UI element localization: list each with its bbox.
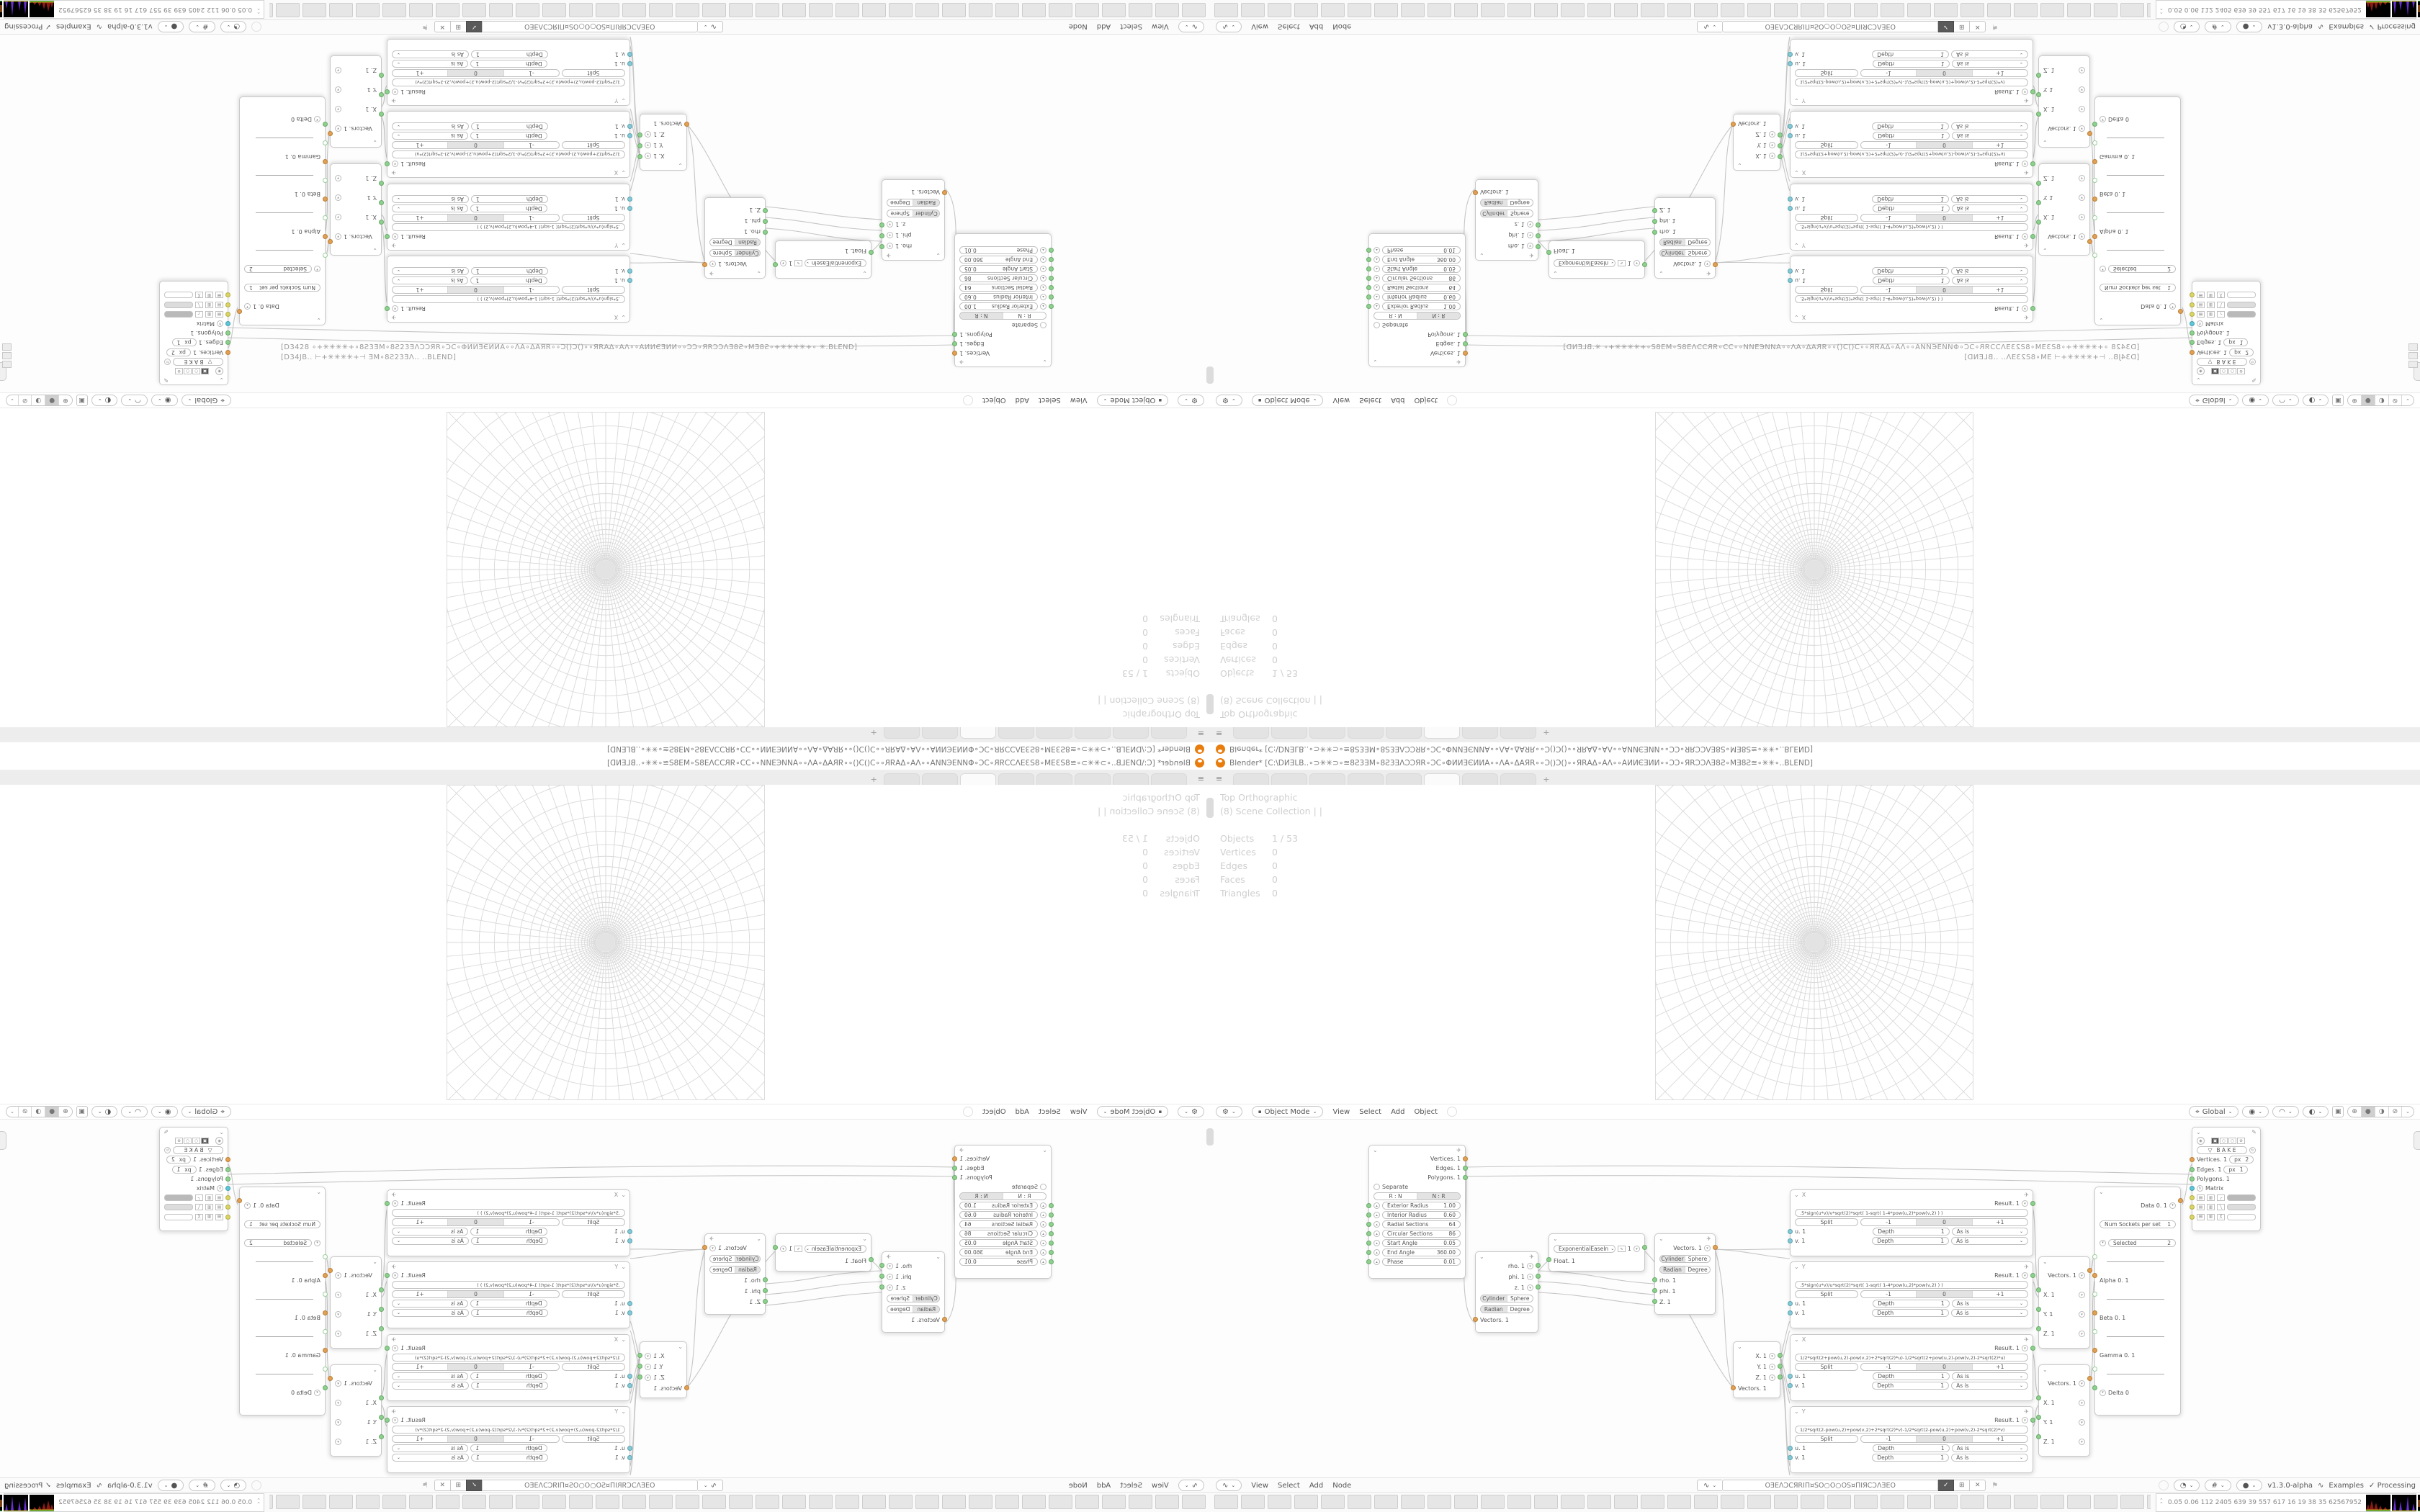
socket-vectors-out[interactable] (2087, 1376, 2092, 1381)
add-workspace-button[interactable]: + (1543, 728, 1549, 737)
socket-x-in[interactable] (379, 112, 384, 117)
taskbar-window-button[interactable] (302, 3, 326, 17)
socket-slot[interactable] (323, 253, 328, 258)
socket-slot[interactable] (323, 1329, 328, 1334)
orientation-selector[interactable]: ⌖Global⌄ (2189, 1106, 2238, 1117)
eye-icon[interactable]: ◉ (215, 367, 223, 375)
taskbar-window-button[interactable] (1987, 1495, 2011, 1509)
menu-select[interactable]: Select (1359, 1108, 1381, 1116)
socket-color-in[interactable] (225, 312, 230, 317)
mode-selector[interactable]: ▪Object Mode⌄ (1252, 395, 1324, 406)
taskbar-window-button[interactable] (409, 1495, 433, 1509)
socket-x-in[interactable] (2036, 220, 2041, 225)
socket-vectors-out[interactable] (2087, 131, 2092, 136)
socket-result-out[interactable] (385, 1273, 390, 1278)
taskbar-window-button[interactable] (889, 3, 913, 17)
node-editor-toolbar-handle[interactable] (1206, 1128, 1210, 1146)
socket-y-in[interactable] (379, 1307, 384, 1312)
search-circle-icon[interactable] (963, 1107, 973, 1117)
workspace-tab[interactable] (884, 773, 920, 785)
sidebar-tab[interactable] (0, 1131, 6, 1150)
taskbar-window-button[interactable] (1129, 1495, 1152, 1509)
node-formula-3[interactable]: ⌄X✈ Result. 1▾ 1/2*sqrt(2+pow(u,2)-pow(v… (387, 1334, 630, 1401)
proportional-edit-button[interactable]: ◠⌄ (2272, 395, 2299, 406)
ring-mode-toggle[interactable]: R : NN : R (959, 1192, 1047, 1200)
workspace-tab-active[interactable] (1424, 773, 1460, 785)
formula-field[interactable]: 1/2*sqrt(2-pow(u,2)+pow(v,2)+2*sqrt(2)*v… (392, 1426, 625, 1434)
socket-v-in[interactable] (1788, 1455, 1793, 1460)
taskbar-window-button[interactable] (1348, 1495, 1371, 1509)
menu-view[interactable]: View (1251, 23, 1268, 31)
socket-edges-in[interactable] (2190, 340, 2195, 345)
angle-toggle[interactable]: RadianDegree (887, 1305, 940, 1313)
socket-vectors-in[interactable] (942, 190, 947, 195)
socket-y-in[interactable] (379, 200, 384, 205)
taskbar-window-button[interactable] (2040, 1495, 2064, 1509)
socket-param-in[interactable] (1366, 1222, 1371, 1227)
angle-toggle[interactable]: RadianDegree (1480, 1305, 1533, 1313)
socket-color-in[interactable] (225, 1215, 230, 1220)
search-circle-icon[interactable] (251, 22, 261, 32)
socket-data-out[interactable] (237, 1198, 242, 1203)
grid-snap-button[interactable]: #⌄ (2205, 1480, 2231, 1491)
split-button[interactable]: Split (562, 141, 625, 149)
socket-u-in[interactable] (1788, 206, 1793, 211)
taskbar-window-button[interactable] (1049, 3, 1072, 17)
taskbar-window-button[interactable] (569, 1495, 593, 1509)
taskbar-window-button[interactable] (2067, 1495, 2091, 1509)
menu-view[interactable]: View (1070, 1108, 1088, 1116)
taskbar-window-button[interactable] (1507, 1495, 1531, 1509)
socket-result-out[interactable] (385, 234, 390, 239)
menu-select[interactable]: Select (1278, 1482, 1300, 1490)
socket-delta-in[interactable] (2092, 122, 2097, 127)
taskbar-window-button[interactable] (756, 1495, 779, 1509)
socket-param-in[interactable] (1366, 1259, 1371, 1264)
socket-polygons-out[interactable] (1463, 332, 1468, 337)
sidebar-tab[interactable] (2414, 362, 2420, 381)
socket-x-in[interactable] (379, 1395, 384, 1400)
node-vector-in-1[interactable]: ⌄ Vectors. 1▾ X. 1▾ Y. 1▾ Z. 1▾ (330, 1256, 382, 1349)
socket-color-in[interactable] (2190, 1205, 2195, 1210)
display-curve-toggle[interactable]: ⊘ (175, 368, 183, 374)
angle-toggle[interactable]: RadianDegree (709, 238, 761, 246)
examples-menu[interactable]: Examples (2329, 23, 2364, 31)
socket-z-out[interactable] (637, 132, 642, 138)
menu-object[interactable]: Object (982, 397, 1006, 405)
taskbar-window-button[interactable] (2014, 3, 2038, 17)
taskbar-window-button[interactable] (1534, 3, 1558, 17)
fake-user-shield-button[interactable]: ✓ (466, 1480, 482, 1491)
socket-slot[interactable] (2092, 1367, 2097, 1372)
editor-type-button[interactable]: ⚙⌄ (1178, 1106, 1204, 1117)
split-button[interactable]: Split (562, 69, 625, 77)
taskbar-window-button[interactable] (1747, 3, 1771, 17)
socket-param-in[interactable] (1366, 276, 1371, 281)
socket-vectors-in[interactable] (942, 1317, 947, 1322)
node-formula-2[interactable]: ⌄Y✈ Result. 1▾ .5*sign(u*v)/u*sqrt(2)*sq… (1790, 184, 2033, 251)
unlink-button[interactable]: ✕ (1970, 1480, 1986, 1491)
menu-view[interactable]: View (1070, 397, 1088, 405)
socket-gamma-in[interactable] (2092, 159, 2097, 164)
node-formula-1[interactable]: ⌄X✈ Result. 1▾ .5*sign(u*v)/v*sqrt(2)*sq… (1790, 1189, 2033, 1256)
socket-y-in[interactable] (2036, 1415, 2041, 1420)
copy-icon[interactable]: ⊞ (450, 1480, 466, 1491)
taskbar-window-button[interactable] (1801, 3, 1824, 17)
menu-add[interactable]: Add (1391, 397, 1404, 405)
socket-color-in[interactable] (2190, 293, 2195, 298)
display-edges-toggle[interactable]: ○ (192, 1138, 200, 1144)
chevron-up-icon[interactable]: ⌃⌃ (2159, 1499, 2164, 1506)
taskbar-window-button[interactable] (569, 3, 593, 17)
taskbar-window-button[interactable] (1694, 3, 1718, 17)
socket-matrix-in[interactable] (225, 321, 230, 326)
socket-vectors-out[interactable] (328, 239, 333, 244)
socket-param-in[interactable] (1049, 248, 1054, 253)
socket-z-in[interactable] (763, 208, 768, 213)
search-circle-icon[interactable] (1447, 395, 1457, 405)
taskbar-window-button[interactable] (1428, 1495, 1451, 1509)
menu-node[interactable]: Node (1332, 23, 1351, 31)
face-color-swatch[interactable] (164, 292, 193, 298)
offset-stepper[interactable]: -10+1 (1860, 286, 2028, 294)
taskbar-window-button[interactable] (1614, 3, 1638, 17)
node-ring[interactable]: ⌄✈ Vertices. 1 Edges. 1 Polygons. 1 Sepa… (954, 1145, 1052, 1279)
socket-delta-in[interactable] (2092, 1385, 2097, 1390)
taskbar-window-button[interactable] (1721, 1495, 1744, 1509)
editor-type-button[interactable]: ∿⌄ (1178, 1480, 1204, 1491)
socket-y-in[interactable] (2036, 92, 2041, 97)
taskbar-window-button[interactable] (302, 1495, 326, 1509)
node-vector-split[interactable]: ⌄ X. 1▾ Y. 1▾ Z. 1▾ Vectors. 1 (1733, 114, 1780, 171)
offset-stepper[interactable]: -10+1 (1860, 1218, 2028, 1226)
socket-param-in[interactable] (1049, 285, 1054, 290)
socket-param-in[interactable] (1049, 1259, 1054, 1264)
taskbar-window-button[interactable] (489, 1495, 513, 1509)
add-workspace-button[interactable]: + (871, 775, 877, 784)
search-circle-icon[interactable] (1447, 1107, 1457, 1117)
processing-toggle[interactable]: ✓ Processing (4, 1482, 51, 1490)
taskbar-window-button[interactable] (1641, 1495, 1664, 1509)
taskbar-window-button[interactable] (329, 3, 353, 17)
socket-result-out[interactable] (2030, 1273, 2035, 1278)
angle-toggle[interactable]: RadianDegree (709, 1266, 761, 1274)
socket-v-in[interactable] (1788, 1310, 1793, 1315)
ring-mode-toggle[interactable]: R : NN : R (959, 312, 1047, 320)
socket-param-in[interactable] (1049, 1241, 1054, 1246)
menu-view[interactable]: View (1251, 1482, 1268, 1490)
workspace-tab-active[interactable] (960, 727, 996, 739)
socket-vertices-out[interactable] (1463, 351, 1468, 356)
taskbar-window-button[interactable] (1321, 3, 1345, 17)
workspace-tab[interactable] (1113, 727, 1149, 739)
gizmo-button[interactable]: ◐⌄ (91, 395, 118, 406)
formula-field[interactable]: .5*sign(u*v)/v*sqrt(2)*sqrt( 1-sqrt( 1-4… (1795, 295, 2028, 303)
taskbar-window-buttons[interactable] (1214, 1, 2151, 17)
editor-type-button[interactable]: ⚙⌄ (1216, 395, 1242, 406)
socket-polygons-in[interactable] (225, 1176, 230, 1182)
menu-add[interactable]: Add (1309, 23, 1323, 31)
socket-z-in[interactable] (379, 1326, 384, 1331)
socket-u-in[interactable] (1788, 1446, 1793, 1451)
easing-mode-select[interactable]: ExponentialEaseIn⌄ (805, 1245, 866, 1253)
formula-field[interactable]: .5*sign(u*v)/v*sqrt(2)*sqrt( 1-sqrt( 1-4… (392, 1209, 625, 1217)
socket-y-out[interactable] (637, 143, 642, 148)
taskbar-window-button[interactable] (436, 3, 460, 17)
angle-toggle[interactable]: RadianDegree (887, 199, 940, 207)
node-vector-in-2[interactable]: ⌄ Vectors. 1▾ X. 1▾ Y. 1▾ Z. 1▾ (2038, 55, 2090, 148)
socket-z-in[interactable] (2036, 73, 2041, 78)
face-color-swatch[interactable] (2227, 1214, 2256, 1220)
taskbar-window-button[interactable] (462, 3, 486, 17)
taskbar-window-buttons[interactable] (269, 1495, 1206, 1511)
orientation-selector[interactable]: ⌖Global⌄ (181, 1106, 231, 1117)
node-vector-polar-in[interactable]: ⌄✈ Vectors. 1▾ CylinderSphere RadianDegr… (704, 197, 766, 279)
node-easing[interactable]: ⌄ ExponentialEaseIn⌄∿1▾ Float. 1 (775, 240, 871, 279)
socket-param-in[interactable] (1049, 1231, 1054, 1236)
overlays-button[interactable]: ▣ (2332, 1106, 2344, 1117)
socket-v-in[interactable] (1788, 197, 1793, 202)
formula-field[interactable]: .5*sign(u*v)/u*sqrt(2)*sqrt( 1-sqrt( 1-4… (392, 223, 625, 231)
taskbar-window-button[interactable] (269, 1495, 273, 1509)
display-edges-toggle[interactable]: ○ (2220, 368, 2228, 374)
formula-field[interactable]: .5*sign(u*v)/u*sqrt(2)*sqrt( 1-sqrt( 1-4… (1795, 1281, 2028, 1289)
collapse-icon[interactable]: ⌄ (1042, 1147, 1047, 1153)
vertex-color-swatch[interactable] (164, 311, 193, 318)
menu-select[interactable]: Select (1120, 1482, 1142, 1490)
taskbar-window-button[interactable] (1155, 3, 1179, 17)
sidebar-tab[interactable] (2414, 1131, 2420, 1150)
refresh-icon[interactable]: ↻ (164, 1147, 171, 1153)
node-formula-3[interactable]: ⌄X✈ Result. 1▾ 1/2*sqrt(2+pow(u,2)-pow(v… (1790, 1334, 2033, 1401)
node-formula-2[interactable]: ⌄Y✈ Result. 1▾ .5*sign(u*v)/u*sqrt(2)*sq… (387, 1261, 630, 1328)
taskbar-window-button[interactable] (276, 3, 300, 17)
socket-param-in[interactable] (1049, 266, 1054, 271)
fake-user-shield-button[interactable]: ✓ (1938, 1480, 1954, 1491)
socket-result-out[interactable] (2030, 234, 2035, 239)
workspace-tab[interactable] (1309, 773, 1345, 785)
taskbar-window-button[interactable] (1934, 1495, 1958, 1509)
chevron-up-icon[interactable]: ⌃⌃ (256, 1499, 261, 1506)
menu-add[interactable]: Add (1016, 397, 1029, 405)
socket-slot[interactable] (2092, 253, 2097, 258)
node-vector-polar-in[interactable]: ⌄✈ Vectors. 1▾ CylinderSphere RadianDegr… (1654, 197, 1716, 279)
eye-icon[interactable]: ◉ (2197, 1137, 2205, 1145)
display-faces-toggle[interactable]: ○ (2228, 368, 2236, 374)
socket-v-in[interactable] (1788, 1238, 1793, 1243)
overlays-button[interactable]: ▣ (76, 395, 88, 406)
taskbar-window-button[interactable] (622, 1495, 646, 1509)
copy-icon[interactable]: ⊞ (1954, 1480, 1970, 1491)
workspace-tab[interactable] (1462, 727, 1498, 739)
socket-vectors-out[interactable] (702, 262, 707, 267)
editor-type-button[interactable]: ∿⌄ (1216, 1480, 1242, 1491)
taskbar-window-buttons[interactable] (1214, 1495, 2151, 1511)
socket-rho-out[interactable] (879, 1263, 884, 1268)
collapse-icon[interactable]: ⌄ (1042, 359, 1047, 366)
taskbar-window-button[interactable] (809, 3, 833, 17)
socket-slot[interactable] (2092, 215, 2097, 220)
taskbar-window-button[interactable] (542, 3, 566, 17)
socket-beta-in[interactable] (2092, 197, 2097, 202)
taskbar-window-button[interactable] (969, 3, 992, 17)
split-button[interactable]: Split (562, 286, 625, 294)
socket-phi-out[interactable] (1536, 1274, 1541, 1279)
taskbar-window-button[interactable] (942, 3, 966, 17)
ring-mode-toggle[interactable]: R : NN : R (1373, 312, 1461, 320)
taskbar-window-button[interactable] (1641, 3, 1664, 17)
split-button[interactable]: Split (1795, 1218, 1858, 1226)
search-circle-icon[interactable] (2159, 1480, 2169, 1490)
vertex-color-swatch[interactable] (164, 1194, 193, 1201)
offset-stepper[interactable]: -10+1 (1860, 214, 2028, 222)
node-data-sockets[interactable]: ⌄ Data 0. 1▾ Num Sockets per set1 ▾Selec… (2094, 96, 2181, 325)
edge-color-swatch[interactable] (2227, 1204, 2256, 1210)
snap-button[interactable]: ◉⌄ (2242, 1106, 2269, 1117)
display-curve-toggle[interactable]: ⊘ (2237, 368, 2245, 374)
socket-edges-in[interactable] (2190, 1167, 2195, 1172)
menu-object[interactable]: Object (982, 1108, 1006, 1116)
taskbar-window-button[interactable] (1321, 1495, 1345, 1509)
socket-rho-in[interactable] (1652, 230, 1657, 235)
unlink-button[interactable]: ✕ (1970, 21, 1986, 32)
bake-button[interactable]: ▽B A K E (2197, 1146, 2247, 1154)
socket-u-in[interactable] (627, 206, 632, 211)
taskbar-window-button[interactable] (649, 1495, 673, 1509)
node-vector-polar-out[interactable]: ⌄✈ rho. 1▾ phi. 1▾ z. 1▾ CylinderSphere … (1475, 179, 1538, 261)
node-vector-split[interactable]: ⌄ X. 1▾ Y. 1▾ Z. 1▾ Vectors. 1 (640, 1341, 687, 1398)
workspace-tab[interactable] (998, 727, 1034, 739)
socket-z-out[interactable] (1778, 1374, 1783, 1380)
copy-icon[interactable]: ⊞ (1954, 21, 1970, 32)
snap-button[interactable]: ◉⌄ (151, 1106, 178, 1117)
socket-result-out[interactable] (385, 306, 390, 311)
socket-data-out[interactable] (237, 309, 242, 314)
formula-field[interactable]: 1/2*sqrt(2+pow(u,2)-pow(v,2)+2*sqrt(2)*u… (392, 150, 625, 158)
shading-mode-switch[interactable]: ⊕ ● ◑ ⊘ ⌄ (2347, 1106, 2414, 1117)
formula-field[interactable]: 1/2*sqrt(2+pow(u,2)-pow(v,2)+2*sqrt(2)*u… (1795, 150, 2028, 158)
taskbar-window-button[interactable] (1561, 3, 1585, 17)
workspace-tab-active[interactable] (960, 773, 996, 785)
socket-vectors-in[interactable] (1473, 1317, 1478, 1322)
fake-user-shield-button[interactable]: ✓ (1938, 21, 1954, 32)
node-formula-4[interactable]: ⌄Y✈ Result. 1▾ 1/2*sqrt(2-pow(u,2)+pow(v… (387, 39, 630, 106)
node-formula-2[interactable]: ⌄Y✈ Result. 1▾ .5*sign(u*v)/u*sqrt(2)*sq… (1790, 1261, 2033, 1328)
gizmo-button[interactable]: ◐⌄ (91, 1106, 118, 1117)
node-formula-2[interactable]: ⌄Y✈ Result. 1▾ .5*sign(u*v)/u*sqrt(2)*sq… (387, 184, 630, 251)
menu-add[interactable]: Add (1309, 1482, 1323, 1490)
socket-gamma-in[interactable] (2092, 1348, 2097, 1353)
examples-menu[interactable]: Examples (2329, 1482, 2364, 1490)
taskbar-window-button[interactable] (835, 1495, 859, 1509)
node-vector-in-1[interactable]: ⌄ Vectors. 1▾ X. 1▾ Y. 1▾ Z. 1▾ (2038, 163, 2090, 256)
socket-x-out[interactable] (637, 1353, 642, 1358)
menu-node[interactable]: Node (1069, 23, 1088, 31)
offset-stepper[interactable]: -10+1 (392, 141, 560, 149)
taskbar-window-button[interactable] (1348, 3, 1371, 17)
taskbar-window-button[interactable] (1881, 1495, 1904, 1509)
viewport-toolbar-handle[interactable] (1210, 694, 1214, 714)
socket-vectors-in[interactable] (684, 122, 689, 127)
node-formula-3[interactable]: ⌄X✈ Result. 1▾ 1/2*sqrt(2+pow(u,2)-pow(v… (387, 111, 630, 178)
socket-float-in[interactable] (869, 1257, 874, 1262)
socket-param-in[interactable] (1366, 1250, 1371, 1255)
socket-result-out[interactable] (385, 161, 390, 166)
taskbar-window-button[interactable] (1960, 1495, 1984, 1509)
menu-view[interactable]: View (1332, 397, 1350, 405)
socket-x-in[interactable] (2036, 1395, 2041, 1400)
timer-button[interactable]: ◔⌄ (220, 1480, 247, 1491)
edge-color-swatch[interactable] (164, 1204, 193, 1210)
workspace-tab[interactable] (1500, 727, 1536, 739)
taskbar-window-button[interactable] (1960, 3, 1984, 17)
menu-object[interactable]: Object (1414, 397, 1438, 405)
taskbar-window-button[interactable] (942, 1495, 966, 1509)
socket-phi-out[interactable] (1536, 233, 1541, 238)
socket-matrix-in[interactable] (2190, 1186, 2195, 1191)
socket-y-in[interactable] (2036, 200, 2041, 205)
pin-icon[interactable]: ⚑ (1991, 23, 1998, 31)
vertex-color-swatch[interactable] (2227, 1194, 2256, 1201)
node-vector-in-2[interactable]: ⌄ Vectors. 1▾ X. 1▾ Y. 1▾ Z. 1▾ (2038, 1364, 2090, 1457)
socket-data-out[interactable] (2178, 1198, 2183, 1203)
node-viewer-draw[interactable]: ⌄✎ ◉▣○○⊘ ▽B A K E↻ Vertices. 1px2 Edges.… (159, 1127, 228, 1231)
search-circle-icon[interactable] (963, 395, 973, 405)
socket-z-out[interactable] (879, 1284, 884, 1290)
taskbar-window-button[interactable] (356, 3, 380, 17)
taskbar-window-button[interactable] (1747, 1495, 1771, 1509)
menu-add[interactable]: Add (1016, 1108, 1029, 1116)
taskbar-window-button[interactable] (2120, 3, 2144, 17)
search-circle-icon[interactable] (2159, 22, 2169, 32)
socket-v-in[interactable] (627, 1238, 632, 1243)
formula-field[interactable]: 1/2*sqrt(2+pow(u,2)-pow(v,2)+2*sqrt(2)*u… (1795, 1354, 2028, 1362)
socket-result-out[interactable] (2030, 306, 2035, 311)
angle-toggle[interactable]: RadianDegree (1659, 238, 1711, 246)
node-vector-polar-out[interactable]: ⌄✈ rho. 1▾ phi. 1▾ z. 1▾ CylinderSphere … (882, 1251, 945, 1333)
socket-vectors-in[interactable] (684, 1385, 689, 1390)
menu-icon[interactable]: ≡ (1198, 729, 1204, 738)
socket-vertices-out[interactable] (1463, 1156, 1468, 1161)
split-button[interactable]: Split (1795, 69, 1858, 77)
socket-result-out[interactable] (385, 89, 390, 94)
offset-stepper[interactable]: -10+1 (1860, 1363, 2028, 1371)
display-faces-toggle[interactable]: ○ (2228, 1138, 2236, 1144)
coords-toggle[interactable]: CylinderSphere (887, 210, 940, 217)
socket-z-out[interactable] (879, 222, 884, 228)
socket-gamma-in[interactable] (323, 1348, 328, 1353)
socket-beta-in[interactable] (323, 197, 328, 202)
editor-type-button[interactable]: ⚙⌄ (1178, 395, 1204, 406)
collapse-icon[interactable]: ⌄ (1373, 1147, 1378, 1153)
workspace-tab[interactable] (1233, 727, 1269, 739)
socket-float-in[interactable] (869, 250, 874, 255)
offset-stepper[interactable]: -10+1 (392, 69, 560, 77)
taskbar-window-button[interactable] (2094, 1495, 2117, 1509)
taskbar-window-button[interactable] (2147, 3, 2151, 17)
taskbar-window-button[interactable] (1454, 1495, 1478, 1509)
socket-phi-in[interactable] (1652, 219, 1657, 224)
taskbar-window-button[interactable] (1907, 3, 1931, 17)
socket-u-in[interactable] (627, 1446, 632, 1451)
taskbar-window-button[interactable] (1182, 3, 1206, 17)
socket-ease-out[interactable] (773, 262, 778, 267)
pin-icon[interactable]: ⚑ (422, 23, 429, 31)
formula-field[interactable]: .5*sign(u*v)/u*sqrt(2)*sqrt( 1-sqrt( 1-4… (1795, 223, 2028, 231)
socket-u-in[interactable] (1788, 133, 1793, 138)
taskbar-window-button[interactable] (1374, 1495, 1398, 1509)
node-editor-toolbar-handle[interactable] (1210, 366, 1214, 384)
